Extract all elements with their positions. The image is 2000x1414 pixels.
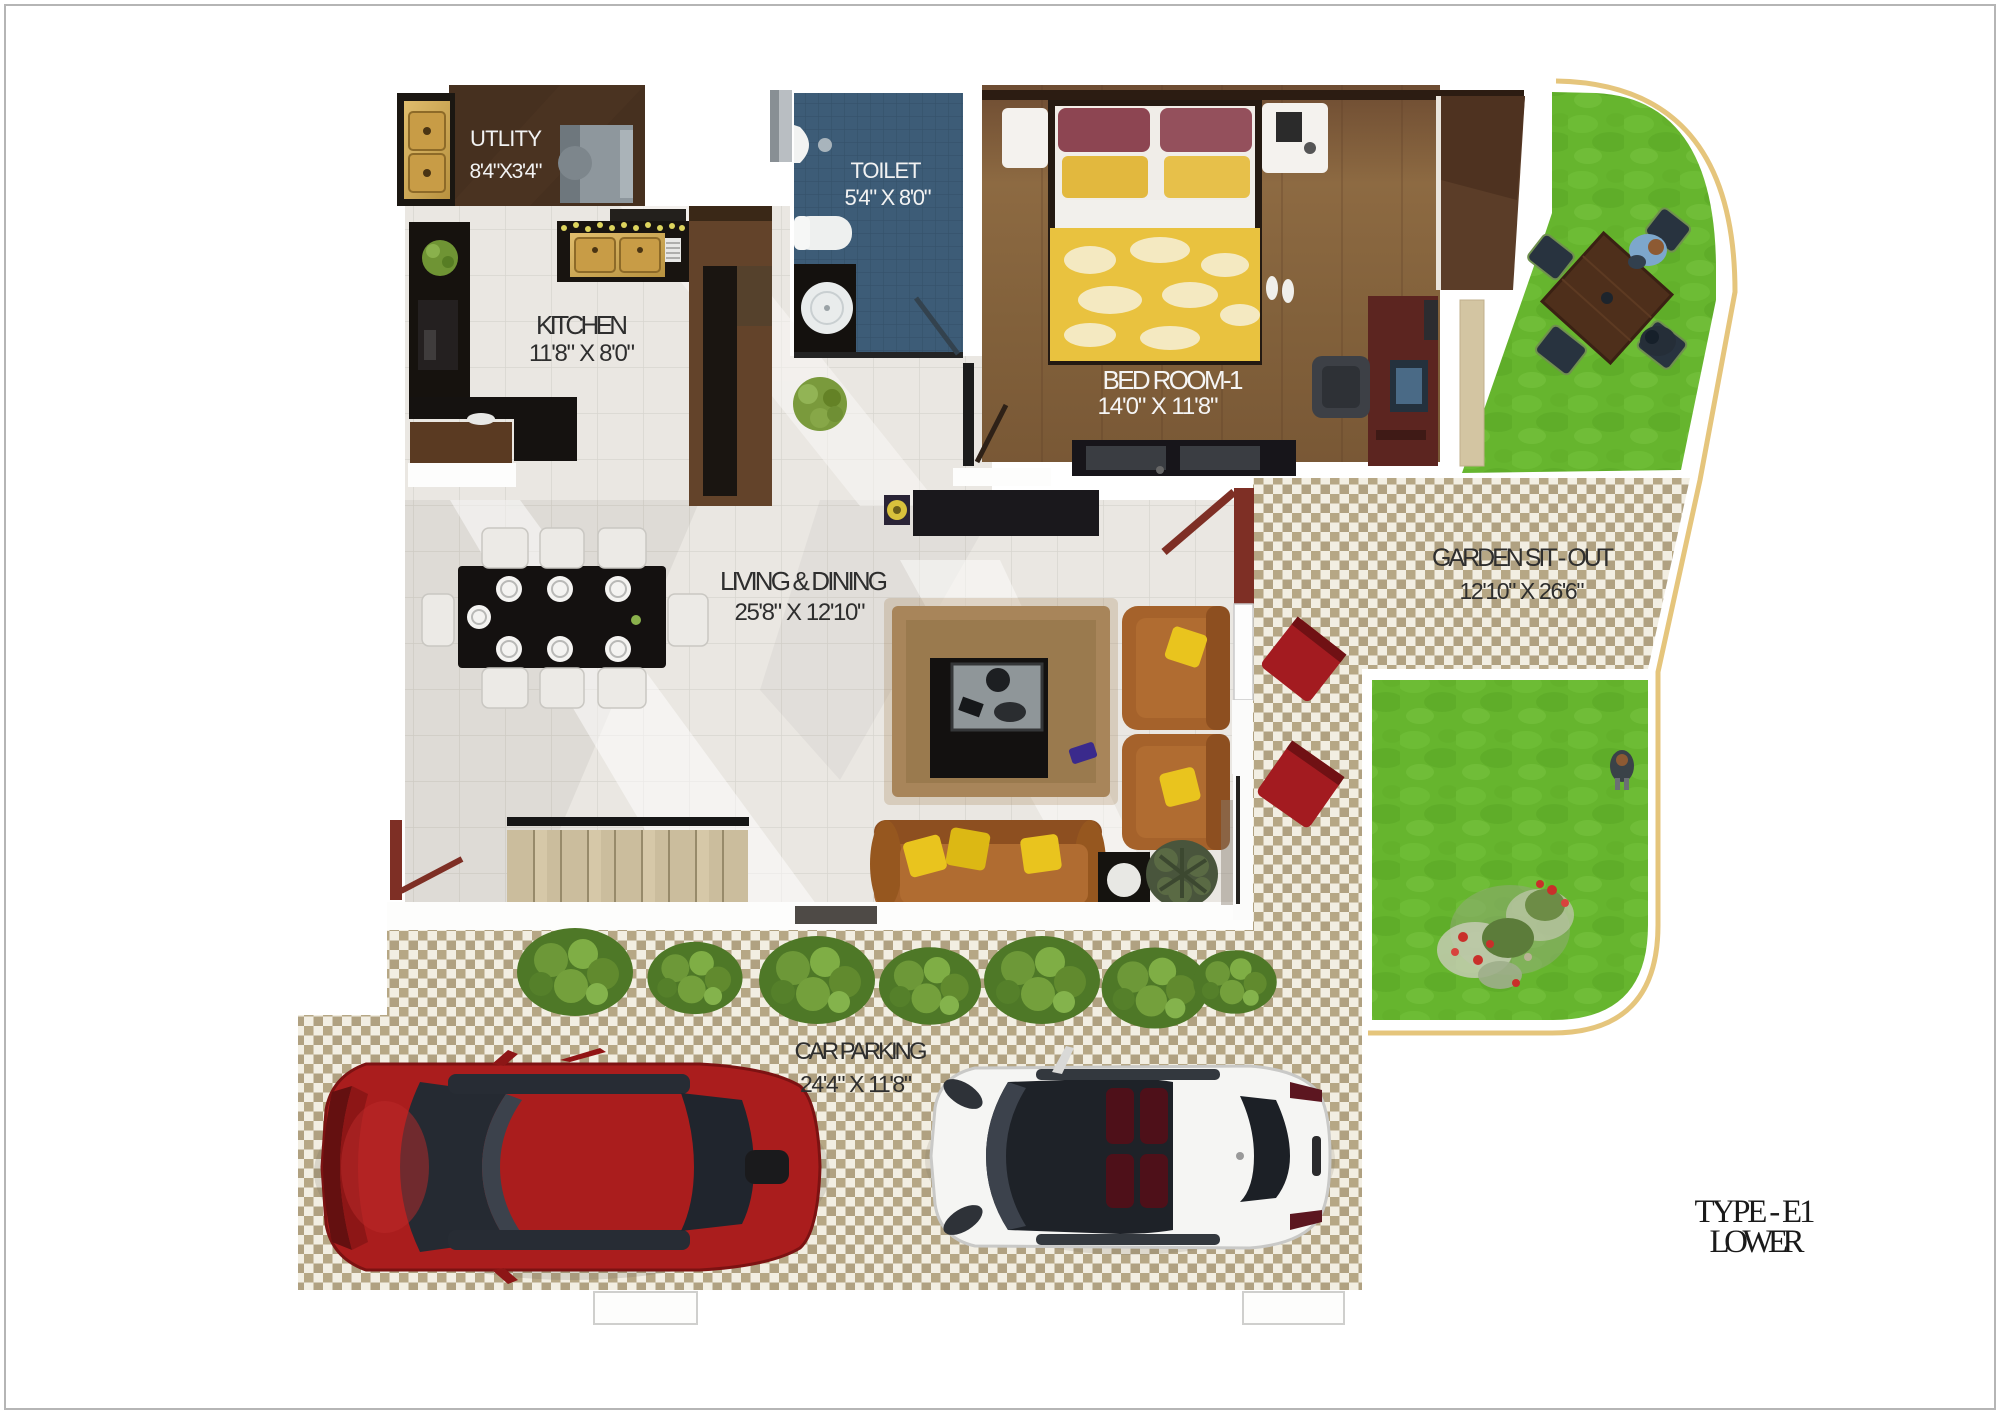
svg-text:14'0" X 11'8": 14'0" X 11'8" <box>1098 393 1219 420</box>
svg-text:24'4" X 11'8": 24'4" X 11'8" <box>800 1071 912 1097</box>
svg-text:5'4" X 8'0": 5'4" X 8'0" <box>845 185 932 210</box>
svg-text:CAR PARKING: CAR PARKING <box>795 1038 928 1065</box>
svg-text:LIVING & DINING: LIVING & DINING <box>720 566 888 596</box>
svg-text:25'8" X 12'10": 25'8" X 12'10" <box>735 599 866 626</box>
svg-text:8'4"X3'4": 8'4"X3'4" <box>470 160 543 183</box>
svg-text:TOILET: TOILET <box>851 158 922 183</box>
svg-text:12'10" X 26'6": 12'10" X 26'6" <box>1460 578 1585 604</box>
svg-text:KITCHEN: KITCHEN <box>536 310 628 340</box>
svg-text:11'8" X 8'0": 11'8" X 8'0" <box>529 340 635 367</box>
svg-text:BED ROOM-1: BED ROOM-1 <box>1103 365 1244 395</box>
svg-text:GARDEN SIT - OUT: GARDEN SIT - OUT <box>1432 544 1614 572</box>
svg-text:LOWER: LOWER <box>1710 1224 1805 1260</box>
svg-text:UTLITY: UTLITY <box>470 126 542 151</box>
